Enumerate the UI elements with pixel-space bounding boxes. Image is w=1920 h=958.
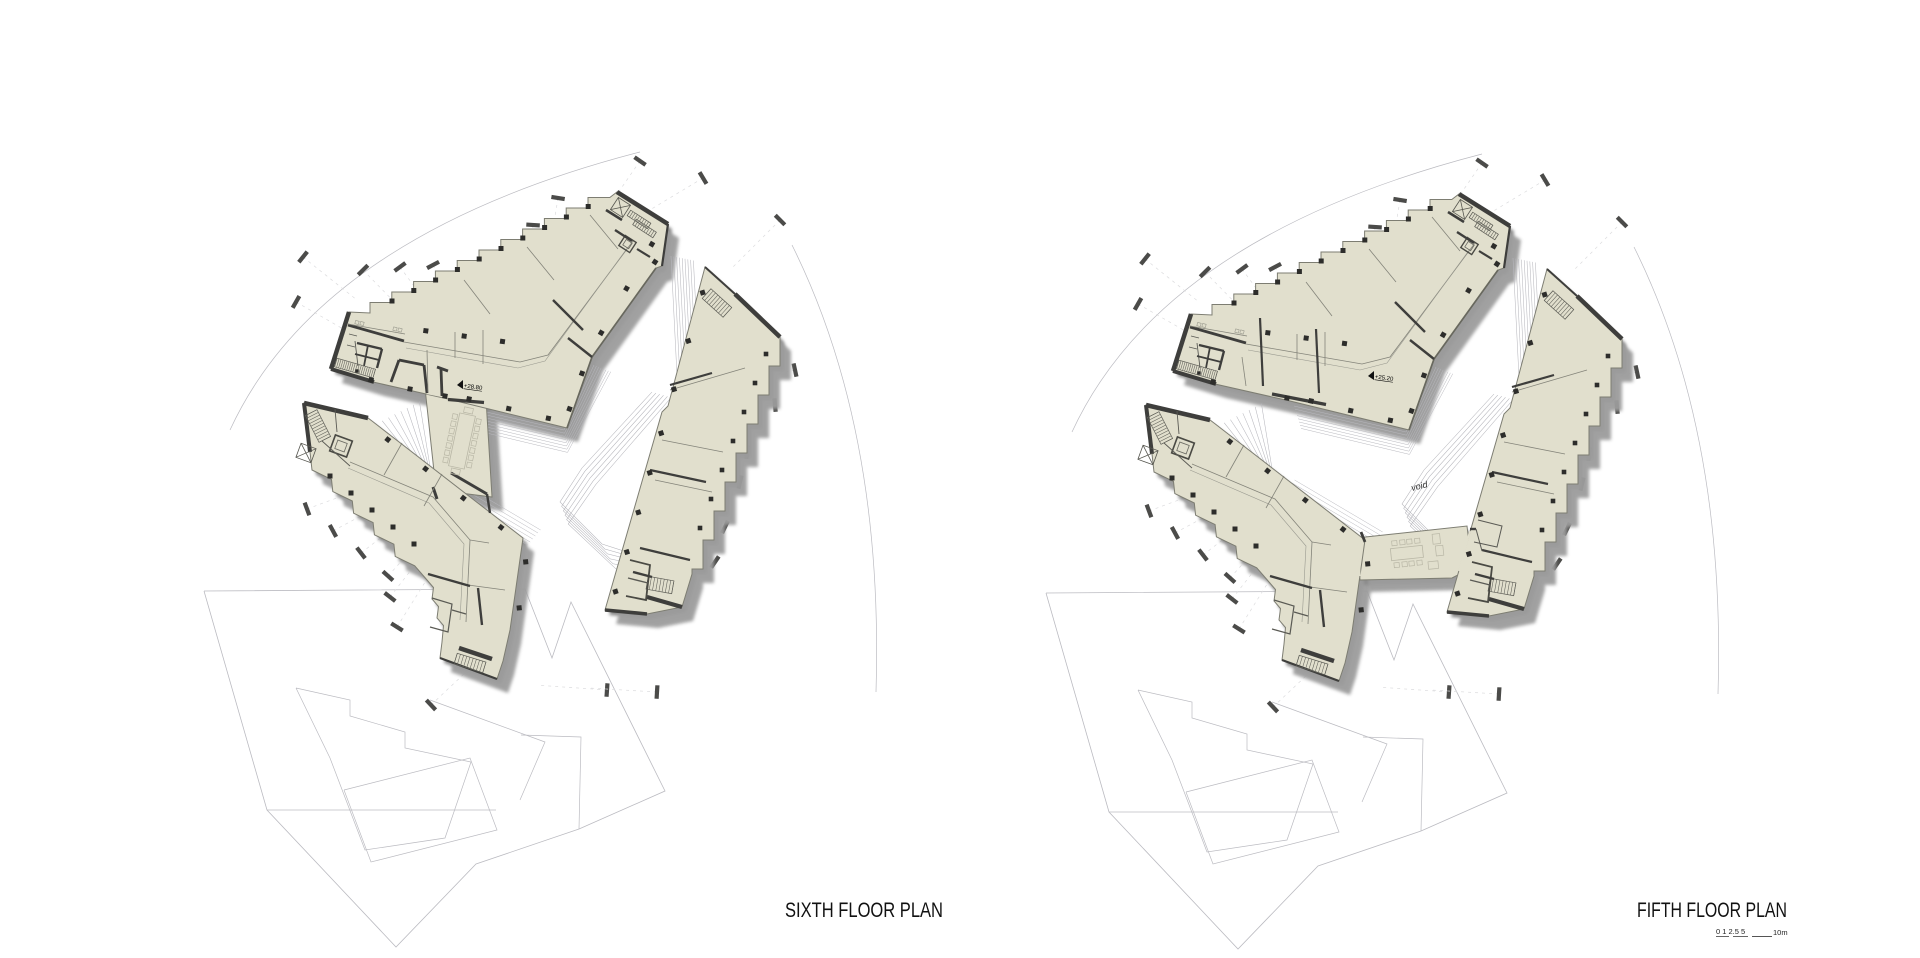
svg-text:0 1 2.5 5: 0 1 2.5 5 [1716, 927, 1745, 936]
svg-text:10m: 10m [1773, 928, 1788, 937]
svg-text:FIFTH FLOOR PLAN: FIFTH FLOOR PLAN [1637, 898, 1787, 922]
svg-text:SIXTH FLOOR PLAN: SIXTH FLOOR PLAN [785, 898, 943, 922]
